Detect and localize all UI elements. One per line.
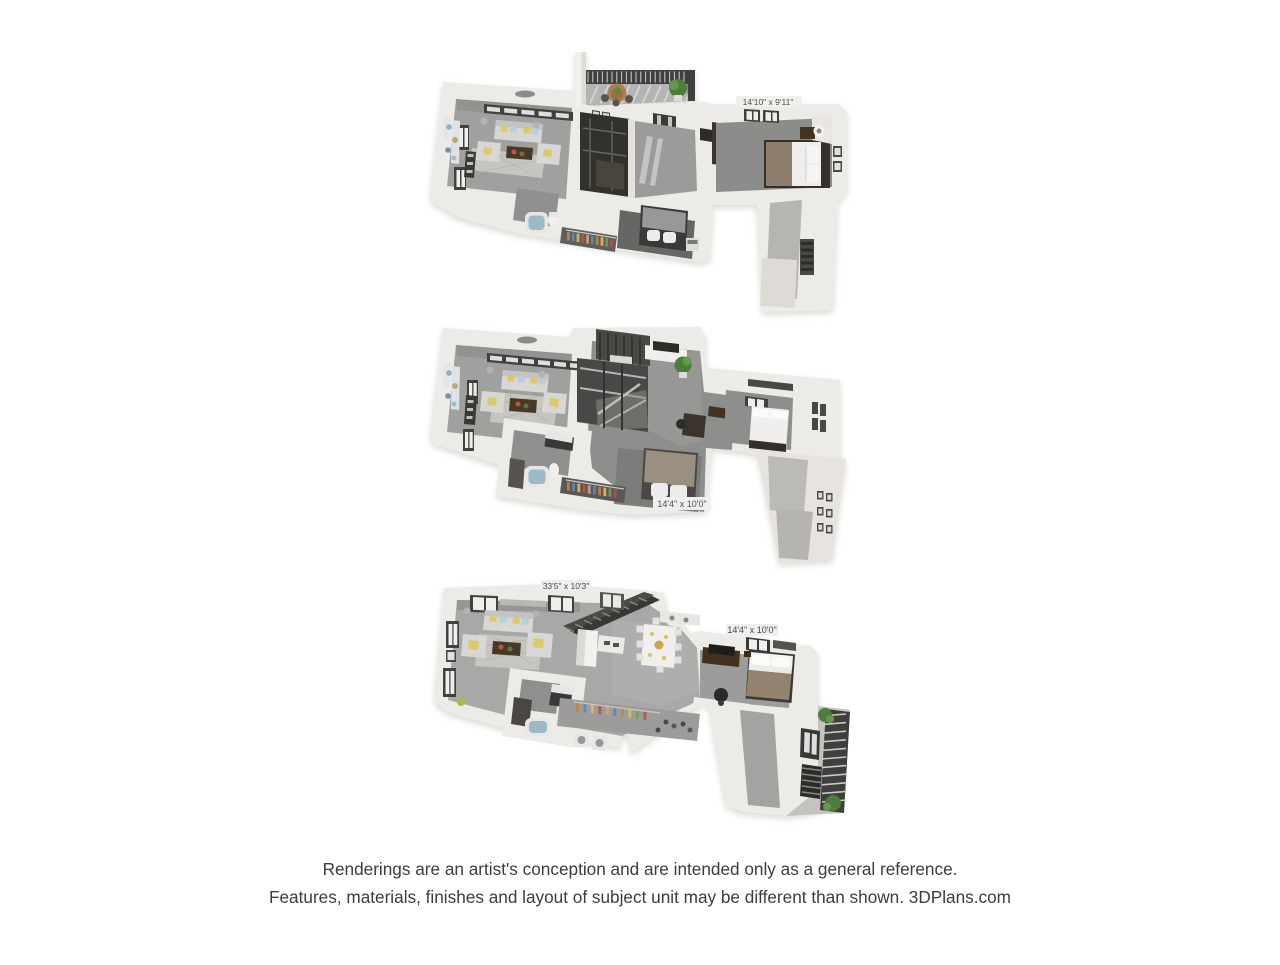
svg-text:14'10" x 9'11": 14'10" x 9'11" — [743, 97, 794, 107]
svg-text:14'4" x 10'0": 14'4" x 10'0" — [727, 625, 776, 635]
svg-text:Features, materials, finishes: Features, materials, finishes and layout… — [269, 887, 1011, 907]
svg-text:33'5" x 10'3": 33'5" x 10'3" — [543, 581, 590, 591]
svg-text:14'4" x 10'0": 14'4" x 10'0" — [657, 499, 706, 509]
svg-text:Renderings are an artist's con: Renderings are an artist's conception an… — [323, 859, 958, 879]
